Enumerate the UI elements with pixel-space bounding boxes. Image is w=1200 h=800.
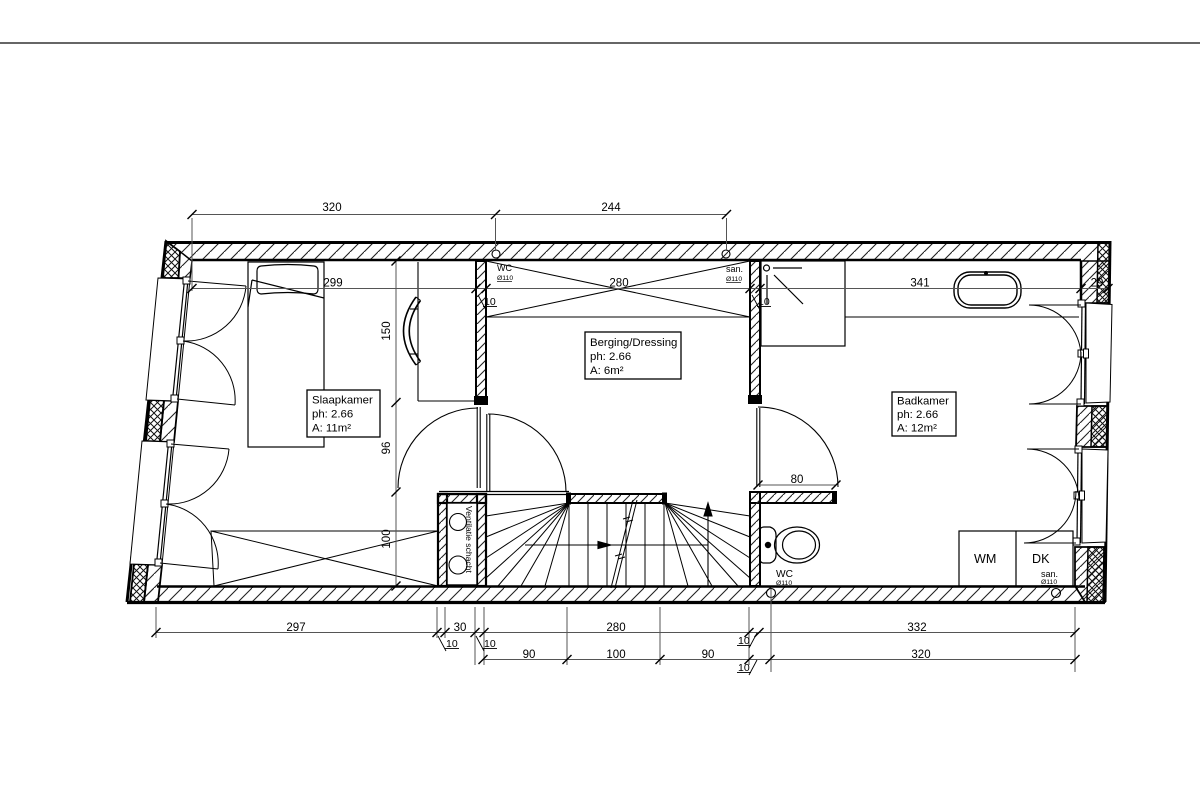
svg-text:320: 320 [322, 202, 341, 214]
svg-text:WC: WC [497, 263, 512, 273]
svg-text:244: 244 [601, 202, 621, 214]
svg-text:332: 332 [907, 622, 926, 634]
svg-text:341: 341 [910, 278, 929, 290]
svg-text:san.: san. [726, 264, 743, 274]
svg-text:280: 280 [606, 622, 625, 634]
svg-text:A: 12m²: A: 12m² [897, 423, 937, 435]
svg-text:Ø110: Ø110 [497, 275, 513, 282]
svg-text:80: 80 [791, 474, 804, 486]
svg-text:Ø110: Ø110 [726, 276, 742, 283]
svg-text:280: 280 [609, 278, 628, 290]
svg-text:90: 90 [523, 649, 536, 661]
svg-text:Ø110: Ø110 [776, 580, 792, 587]
svg-text:299: 299 [323, 278, 342, 290]
svg-text:96: 96 [381, 442, 393, 455]
svg-text:Slaapkamer: Slaapkamer [312, 395, 373, 407]
svg-text:29: 29 [1091, 278, 1104, 290]
svg-text:Badkamer: Badkamer [897, 396, 949, 408]
svg-text:ph: 2.66: ph: 2.66 [897, 409, 938, 421]
svg-text:A: 6m²: A: 6m² [590, 365, 624, 377]
svg-text:DK: DK [1032, 552, 1050, 566]
svg-text:A: 11m²: A: 11m² [312, 423, 351, 435]
svg-text:Ventilatie schacht: Ventilatie schacht [464, 506, 474, 573]
svg-text:ph: 2.66: ph: 2.66 [312, 409, 353, 421]
svg-text:Ø110: Ø110 [1041, 579, 1057, 586]
svg-text:30: 30 [454, 622, 467, 634]
svg-text:150: 150 [381, 321, 393, 340]
svg-text:WC: WC [776, 569, 793, 580]
svg-text:100: 100 [381, 529, 393, 548]
svg-text:100: 100 [606, 649, 625, 661]
svg-text:90: 90 [702, 649, 715, 661]
svg-text:297: 297 [286, 622, 305, 634]
svg-text:WM: WM [974, 552, 996, 566]
svg-text:san.: san. [1041, 569, 1058, 579]
svg-text:Berging/Dressing: Berging/Dressing [590, 337, 677, 349]
svg-text:320: 320 [911, 649, 930, 661]
svg-text:ph: 2.66: ph: 2.66 [590, 351, 631, 363]
